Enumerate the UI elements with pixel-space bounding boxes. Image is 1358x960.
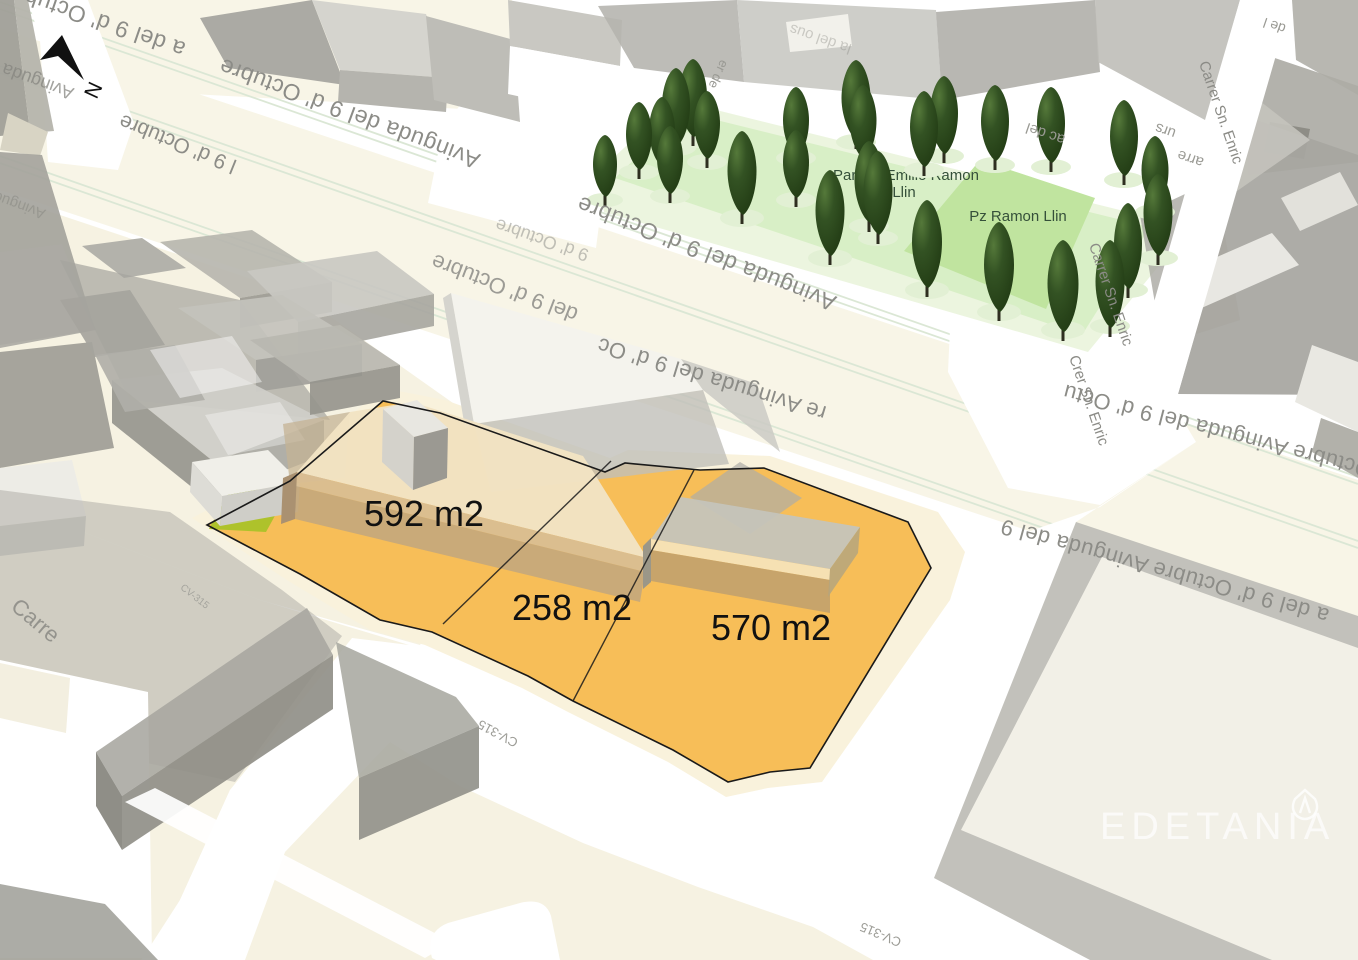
svg-text:258 m2: 258 m2 — [512, 587, 632, 628]
svg-text:570 m2: 570 m2 — [711, 607, 831, 648]
svg-text:592 m2: 592 m2 — [364, 493, 484, 534]
svg-text:Pz Ramon Llin: Pz Ramon Llin — [969, 208, 1067, 225]
svg-text:Llin: Llin — [892, 184, 915, 201]
